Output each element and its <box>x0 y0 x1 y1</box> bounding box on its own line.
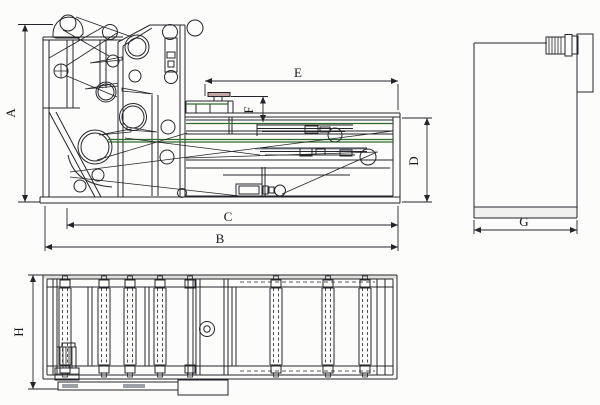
plan-frame <box>43 275 397 379</box>
dimension-label-f: F <box>241 106 256 113</box>
dimension-D: D <box>402 118 432 202</box>
dimension-F: F <box>231 97 268 123</box>
plan-roller-stations <box>59 276 371 377</box>
plan-hidden-lines <box>240 282 375 371</box>
dimension-label-d: D <box>406 156 421 165</box>
dimension-A: A <box>3 25 53 203</box>
plan-view <box>43 275 397 395</box>
belt-press-dimensional-drawing: A E F D C B G <box>0 0 600 405</box>
engineering-drawing: A E F D C B G <box>0 0 600 405</box>
dimension-label-a: A <box>3 108 18 118</box>
side-elevation-view <box>40 15 400 203</box>
plan-base-strip <box>58 380 228 395</box>
end-view <box>474 34 593 218</box>
feed-inlet-flange <box>208 93 230 97</box>
roller-plate <box>118 25 185 197</box>
dimension-E: E <box>205 65 398 110</box>
dimension-label-e: E <box>294 65 302 80</box>
drive-motor <box>546 34 593 92</box>
lower-roller-carriage <box>260 148 376 165</box>
dimension-label-h: H <box>11 327 26 336</box>
drawing-canvas: A E F D C B G <box>0 0 600 405</box>
dimension-label-c: C <box>224 209 233 224</box>
dimension-B: B <box>45 206 398 251</box>
belt-tensioner <box>163 25 178 84</box>
bed-drive-unit <box>236 184 286 196</box>
head-rollers <box>54 15 203 192</box>
feed-box <box>186 93 233 114</box>
dimension-label-b: B <box>216 231 225 246</box>
dimension-C: C <box>67 208 398 229</box>
lifting-lug <box>53 17 83 38</box>
dimension-H: H <box>11 275 58 389</box>
dimension-label-g: G <box>519 214 528 229</box>
plan-hub <box>200 322 215 337</box>
head-belt-lines <box>49 17 132 97</box>
